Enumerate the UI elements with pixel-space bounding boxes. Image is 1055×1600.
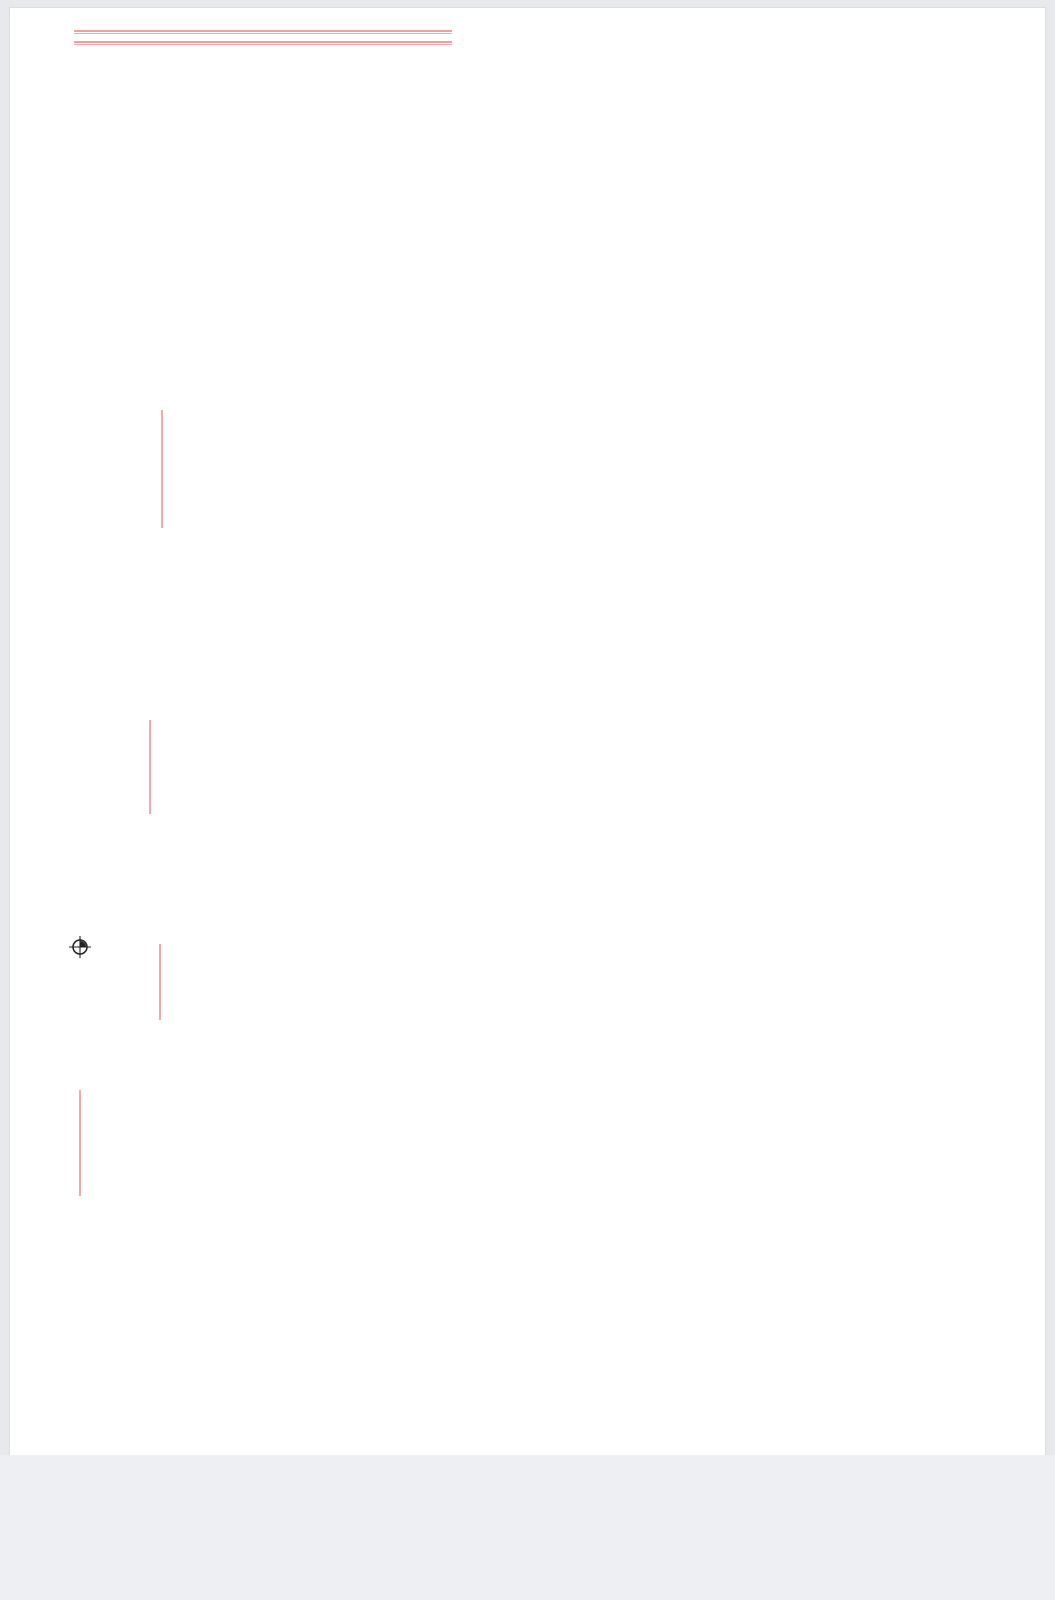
- compass-symbol: [69, 936, 91, 958]
- top-annotations: [74, 31, 452, 45]
- title-bar: [0, 1455, 1055, 1600]
- drawing-sheet: [10, 8, 1045, 1455]
- side-annotations: [80, 410, 162, 1196]
- track-plan-canvas: [10, 8, 1055, 1455]
